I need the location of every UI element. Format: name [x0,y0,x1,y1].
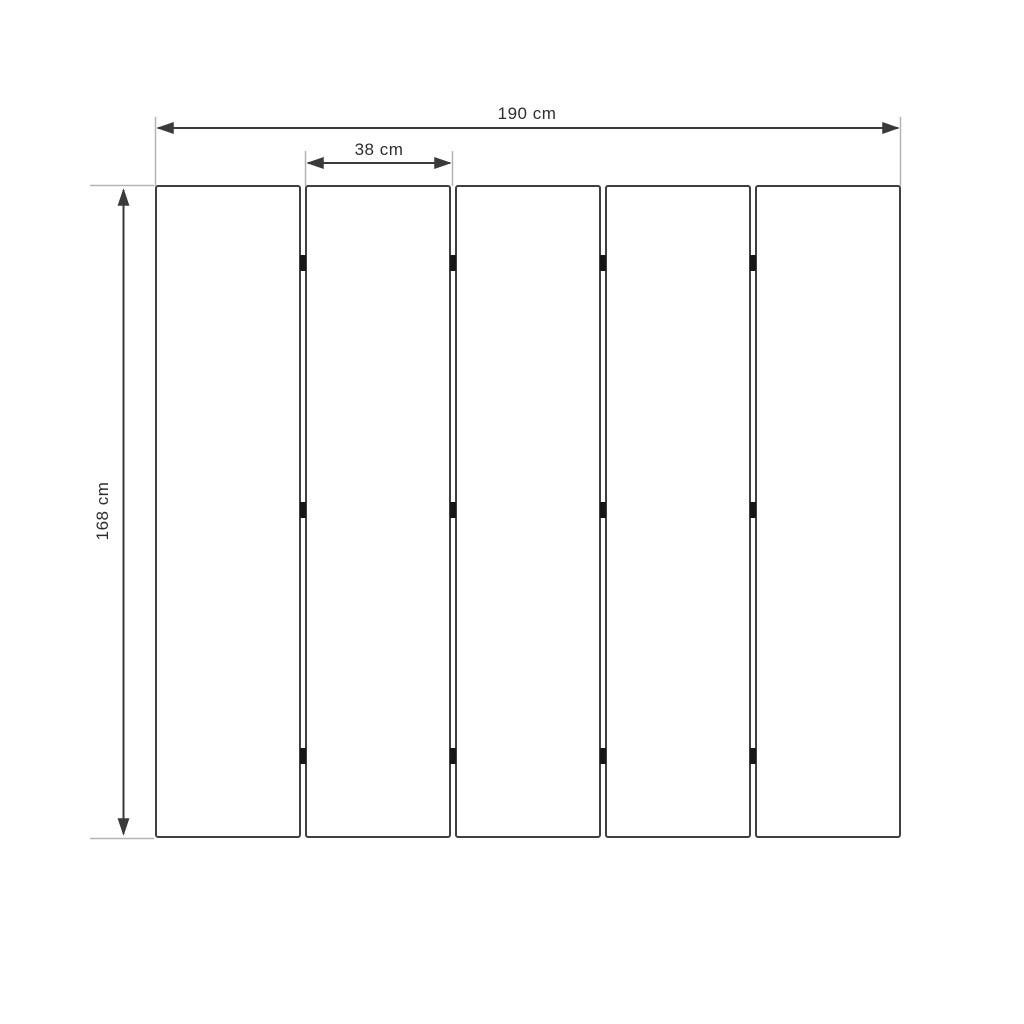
hinge-icon [750,255,756,271]
panel-5 [755,185,901,838]
panel-1 [155,185,301,838]
total-width-label: 190 cm [498,104,557,123]
panel-4 [605,185,751,838]
hinge-icon [600,748,606,764]
hinge-icon [450,255,456,271]
height-label: 168 cm [93,482,112,541]
hinge-icon [300,748,306,764]
hinge-icon [600,502,606,518]
hinge-icon [450,502,456,518]
hinge-icon [300,502,306,518]
panel-width-label: 38 cm [355,140,404,159]
panel-3 [455,185,601,838]
panel-diagram: 190 cm 38 cm 168 cm [0,0,1024,1024]
hinge-icon [450,748,456,764]
hinge-icon [600,255,606,271]
panel-2 [305,185,451,838]
hinge-icon [300,255,306,271]
hinge-icon [750,502,756,518]
hinge-icon [750,748,756,764]
